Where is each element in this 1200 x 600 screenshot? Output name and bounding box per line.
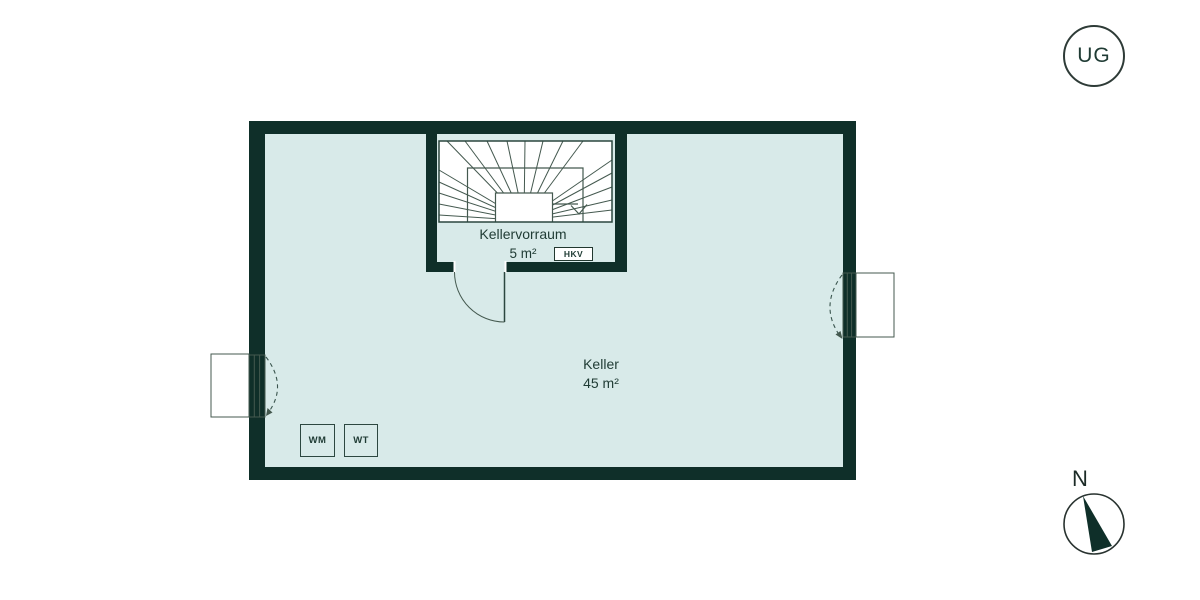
vestibule-wall-bottom-left-segment — [426, 262, 455, 272]
hkv-box: HKV — [554, 247, 593, 261]
light-shaft-left — [211, 354, 249, 417]
level-badge-label: UG — [1077, 44, 1111, 68]
light-shaft-right — [856, 273, 894, 337]
compass-circle — [1064, 494, 1124, 554]
washing-machine-box: WM — [300, 424, 335, 457]
vestibule-wall-right — [615, 134, 627, 272]
compass-needle-icon — [1083, 496, 1112, 552]
level-badge[interactable]: UG — [1063, 25, 1125, 87]
vestibule-wall-bottom-right-segment — [505, 262, 627, 272]
dryer-label: WT — [353, 435, 369, 446]
vestibule-name: Kellervorraum — [443, 225, 603, 244]
floor-plan-page: UG — [0, 0, 1200, 600]
compass-north-label: N — [1066, 466, 1094, 492]
keller-label: Keller 45 m² — [551, 355, 651, 393]
vestibule-wall-left — [426, 134, 437, 272]
keller-name: Keller — [551, 355, 651, 374]
dryer-box: WT — [344, 424, 378, 457]
hkv-label: HKV — [564, 249, 583, 259]
keller-area: 45 m² — [551, 374, 651, 393]
washing-machine-label: WM — [309, 435, 327, 446]
keller-room-floor — [265, 134, 843, 467]
compass-icon — [1064, 494, 1124, 554]
